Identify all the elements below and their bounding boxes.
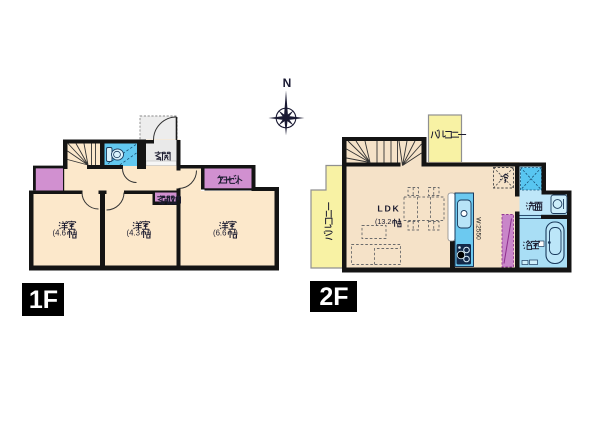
svg-text:): ) bbox=[399, 217, 401, 226]
svg-text:1F: 1F bbox=[29, 286, 58, 314]
svg-text:N: N bbox=[283, 76, 292, 90]
svg-text:): ) bbox=[75, 229, 78, 238]
svg-text:LDK: LDK bbox=[377, 204, 400, 214]
svg-text:(13.2: (13.2 bbox=[375, 217, 391, 226]
svg-text:): ) bbox=[235, 229, 238, 238]
svg-text:(6.6: (6.6 bbox=[213, 229, 226, 238]
svg-text:(4.6: (4.6 bbox=[53, 229, 66, 238]
svg-text:2F: 2F bbox=[319, 283, 348, 311]
svg-text:): ) bbox=[149, 229, 152, 238]
svg-text:(4.3: (4.3 bbox=[127, 229, 140, 238]
svg-text:W:2550: W:2550 bbox=[475, 217, 482, 240]
